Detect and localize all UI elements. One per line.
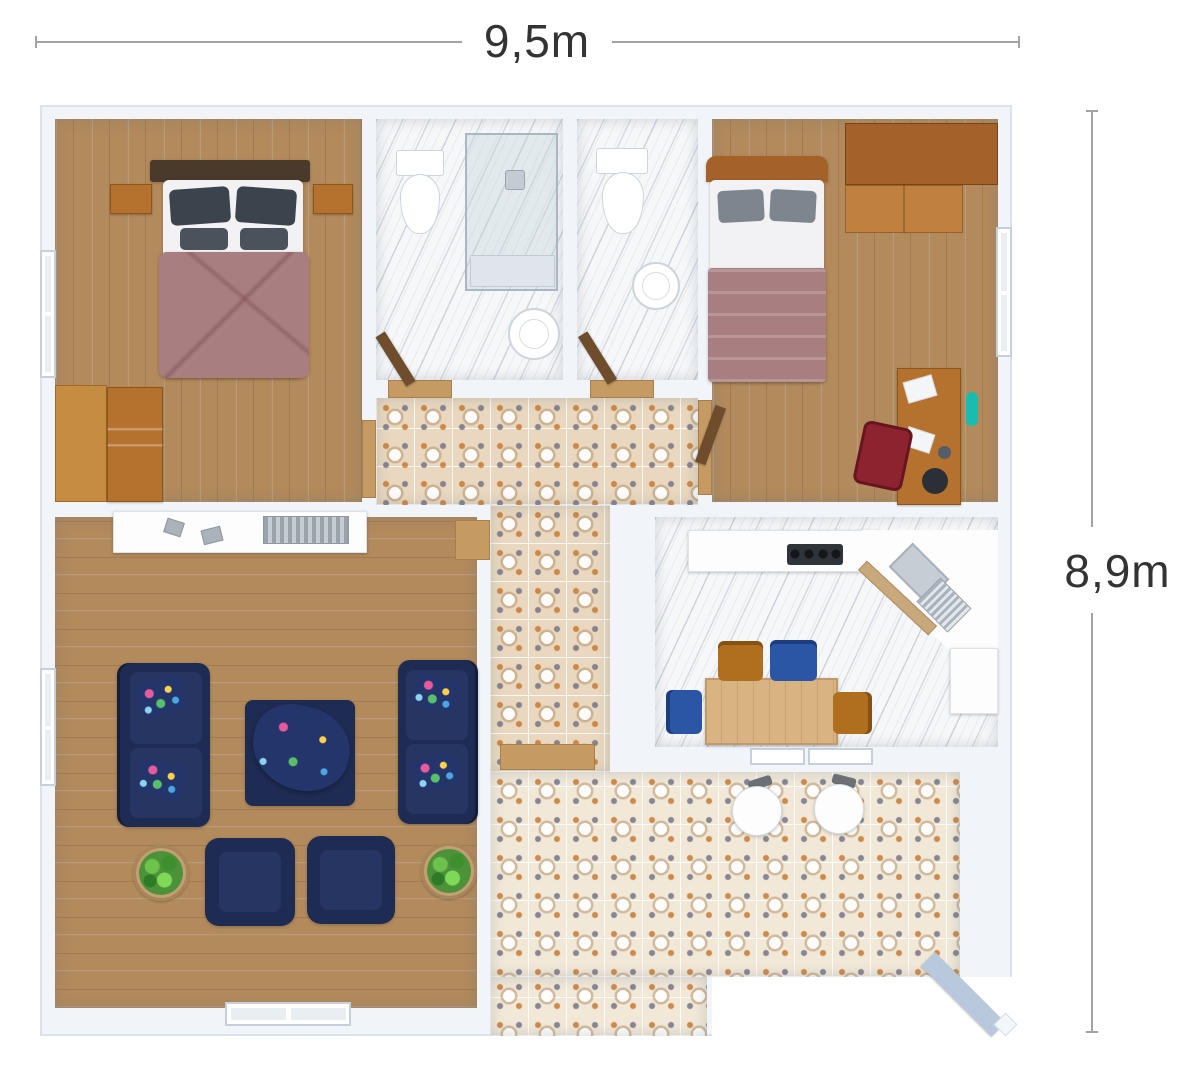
terrace-stool-right	[814, 784, 864, 834]
cooktop	[787, 544, 843, 565]
dining-chair-blue	[666, 690, 702, 734]
window-pane	[45, 730, 51, 780]
kitchen-window-left	[750, 748, 805, 765]
plant-left	[139, 851, 183, 895]
dining-chair-blue	[770, 640, 817, 681]
bed-pillow-gray	[717, 189, 765, 223]
right-dimension-tick-bottom	[1086, 1031, 1098, 1033]
bed-pillow-small	[240, 228, 288, 250]
living-room-window-left	[40, 668, 56, 786]
dining-table	[705, 678, 838, 745]
kitchen-window-right	[808, 748, 873, 765]
right-dimension-line-top	[1091, 110, 1093, 527]
nightstand-left	[110, 184, 152, 214]
window-pane	[291, 1008, 346, 1020]
height-dimension-label: 8,9m	[1045, 548, 1190, 594]
shower-tray	[470, 255, 555, 287]
window-pane	[45, 256, 51, 312]
single-bed-blanket	[708, 268, 826, 382]
single-bed-headboard	[706, 156, 828, 182]
armchair-seat	[320, 850, 382, 910]
width-dimension-label: 9,5m	[462, 18, 612, 64]
window-pane	[1001, 295, 1007, 351]
plant-right	[427, 849, 471, 893]
bed-pillow-small	[180, 228, 228, 250]
kitchen-counter-right	[950, 648, 998, 714]
terrace-floor-extension	[490, 977, 707, 1036]
bedroom-2-window	[996, 227, 1012, 357]
bedroom-1-door	[362, 420, 376, 498]
desk-lamp-icon	[922, 468, 948, 494]
floor-plan-figure: 9,5m 8,9m	[0, 0, 1193, 1075]
dining-chair-orange	[833, 692, 872, 734]
right-dimension-tick-top	[1086, 110, 1098, 112]
nightstand-right	[313, 184, 353, 214]
living-room-window-bottom	[225, 1002, 351, 1026]
dresser-chest	[107, 387, 163, 502]
toilet-tank	[396, 150, 444, 176]
top-dimension-line-right	[612, 41, 1020, 43]
terrace-floor	[490, 772, 960, 977]
bathroom-1-door	[388, 380, 452, 398]
terrace-stool-left	[732, 786, 782, 836]
toilet-tank	[596, 148, 648, 174]
kitchen-counter-top	[688, 530, 880, 572]
bed-pillow-dark	[235, 186, 297, 226]
double-bed-headboard	[150, 160, 310, 182]
wall-accent-teal	[966, 392, 978, 426]
bed-pillow-gray	[769, 189, 817, 223]
armchair-seat	[219, 852, 281, 912]
corridor-floor	[490, 505, 610, 772]
right-dimension-line-bottom	[1091, 613, 1093, 1033]
top-dimension-line-left	[35, 41, 462, 43]
bathroom-1-sink	[508, 308, 560, 360]
shower-head-icon	[505, 170, 525, 190]
top-dimension-tick-right	[1018, 36, 1020, 48]
bathroom-2-door	[590, 380, 654, 398]
desk-cup-icon	[938, 446, 951, 459]
bed-pillow-dark	[169, 186, 231, 226]
bathroom-2-sink	[632, 262, 680, 310]
top-dimension-tick-left	[35, 36, 37, 48]
dining-chair-orange	[718, 641, 763, 681]
terrace-door	[500, 744, 595, 770]
double-bed-duvet	[159, 252, 309, 378]
wardrobe-upper	[845, 123, 998, 185]
hallway-floor	[376, 398, 698, 505]
wardrobe-lower	[845, 185, 963, 233]
window-pane	[45, 674, 51, 726]
window-pane	[231, 1008, 286, 1020]
window-pane	[1001, 233, 1007, 291]
window-pane	[45, 316, 51, 372]
media-console	[263, 516, 349, 544]
bedroom-1-window	[40, 250, 56, 378]
living-room-door	[455, 520, 490, 560]
dresser-light	[55, 385, 107, 502]
